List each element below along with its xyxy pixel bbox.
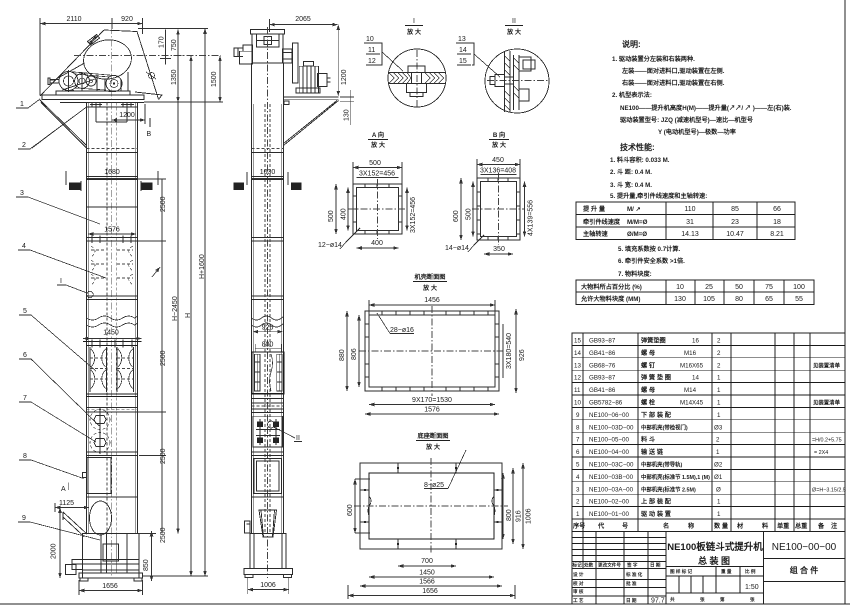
svg-text:Ø2: Ø2 (714, 462, 723, 469)
svg-text:1200: 1200 (341, 69, 348, 85)
svg-text:13: 13 (458, 36, 466, 43)
svg-text:25: 25 (705, 284, 713, 291)
svg-text:放 大: 放 大 (406, 28, 422, 36)
svg-text:GB41−86: GB41−86 (589, 387, 616, 394)
svg-text:1006: 1006 (526, 508, 533, 524)
svg-text:3. 斗 宽: 0.4 M.: 3. 斗 宽: 0.4 M. (610, 181, 652, 189)
svg-text:I: I (60, 278, 62, 285)
svg-text:800: 800 (506, 509, 513, 521)
svg-text:处数: 处数 (583, 562, 594, 569)
svg-text:28−ø16: 28−ø16 (390, 327, 414, 334)
svg-text:15: 15 (574, 338, 581, 345)
svg-text:600: 600 (453, 210, 460, 222)
svg-text:允许大物料块度 (MM): 允许大物料块度 (MM) (580, 295, 640, 303)
svg-text:1. 驱动装置分左装和右装两种.: 1. 驱动装置分左装和右装两种. (612, 55, 695, 63)
svg-text:916: 916 (516, 510, 523, 522)
svg-text:2500: 2500 (160, 448, 167, 464)
svg-text:9X170=1530: 9X170=1530 (412, 397, 452, 404)
svg-text:GB5782−86: GB5782−86 (589, 400, 623, 407)
svg-text:1456: 1456 (424, 297, 440, 304)
svg-text:校 对: 校 对 (573, 580, 584, 587)
svg-text:23: 23 (731, 219, 739, 226)
svg-text:驱动装置型号: JZQ (减速机型号)—速比—机型号: 驱动装置型号: JZQ (减速机型号)—速比—机型号 (620, 116, 753, 124)
svg-text:更改文件号: 更改文件号 (598, 562, 621, 569)
svg-text:75: 75 (765, 284, 773, 291)
svg-text:350: 350 (493, 246, 505, 253)
svg-text:审 核: 审 核 (573, 588, 584, 595)
svg-text:926: 926 (519, 349, 526, 361)
svg-text:放 大: 放 大 (506, 28, 522, 36)
svg-text:5: 5 (23, 308, 27, 315)
svg-text:料: 料 (762, 522, 769, 530)
svg-text:926: 926 (262, 325, 274, 332)
svg-text:工 艺: 工 艺 (573, 597, 584, 604)
svg-text:材: 材 (736, 522, 744, 530)
svg-text:放 大: 放 大 (422, 284, 438, 292)
svg-text:主轴转速: 主轴转速 (583, 230, 609, 238)
svg-text:8.21: 8.21 (770, 231, 784, 238)
svg-text:6. 牵引件安全系数 >1倍.: 6. 牵引件安全系数 >1倍. (618, 257, 685, 265)
svg-text:称: 称 (688, 522, 695, 530)
svg-text:806: 806 (351, 348, 358, 360)
svg-text:3: 3 (576, 486, 580, 493)
svg-text:8: 8 (23, 453, 27, 460)
svg-text:2: 2 (717, 338, 721, 345)
svg-text:A: A (61, 486, 66, 493)
svg-text:数 量: 数 量 (714, 522, 729, 530)
svg-text:序号: 序号 (572, 522, 585, 530)
svg-text:中部机壳(带检视门): 中部机壳(带检视门) (641, 423, 688, 431)
svg-text:1566: 1566 (419, 579, 435, 586)
svg-text:图 样 标 记: 图 样 标 记 (670, 568, 693, 575)
svg-text:1: 1 (717, 375, 721, 382)
svg-text:注: 注 (831, 522, 838, 530)
svg-text:7. 物料块度:: 7. 物料块度: (618, 270, 652, 278)
svg-text:1576: 1576 (424, 407, 440, 414)
svg-text:II: II (296, 435, 300, 442)
svg-text:750: 750 (171, 39, 178, 51)
svg-text:= 2X4: = 2X4 (814, 450, 828, 456)
svg-text:10: 10 (366, 36, 374, 43)
svg-text:B: B (147, 131, 152, 138)
svg-text:GB93−87: GB93−87 (589, 338, 616, 345)
svg-text:3X136=408: 3X136=408 (480, 168, 516, 175)
svg-text:1: 1 (717, 499, 721, 506)
svg-text:驱 动 装 置: 驱 动 装 置 (641, 510, 671, 518)
svg-text:NE100−02−00: NE100−02−00 (589, 499, 629, 506)
svg-text:55: 55 (795, 296, 803, 303)
svg-text:13: 13 (574, 362, 581, 369)
svg-text:6: 6 (576, 449, 580, 456)
svg-text:920: 920 (121, 16, 133, 23)
svg-text:料 斗: 料 斗 (641, 436, 655, 444)
svg-text:NE100−03B−00: NE100−03B−00 (589, 474, 634, 481)
svg-text:850: 850 (143, 559, 150, 571)
svg-text:见装置清单: 见装置清单 (812, 361, 841, 369)
svg-text:8−ø25: 8−ø25 (424, 482, 444, 489)
svg-text:12: 12 (574, 375, 581, 382)
svg-text:105: 105 (703, 296, 715, 303)
svg-text:1: 1 (716, 449, 720, 456)
svg-text:M16: M16 (684, 350, 697, 357)
svg-text:1125: 1125 (59, 500, 74, 507)
svg-text:GB41−86: GB41−86 (589, 350, 616, 357)
svg-text:50: 50 (735, 284, 743, 291)
svg-text:NE100−05−00: NE100−05−00 (589, 437, 629, 444)
svg-text:NE100——提升机高度H(M)——提升量(↗↗/ ↗ )—: NE100——提升机高度H(M)——提升量(↗↗/ ↗ )——左(右)装. (620, 104, 792, 112)
svg-text:500: 500 (369, 160, 381, 167)
svg-text:标记: 标记 (572, 562, 583, 569)
svg-text:880: 880 (339, 349, 346, 361)
svg-text:5. 填充系数按 0.7计算.: 5. 填充系数按 0.7计算. (618, 245, 681, 253)
svg-text:Ø1: Ø1 (714, 474, 723, 481)
svg-text:上 部 装 配: 上 部 装 配 (641, 498, 672, 506)
svg-text:1: 1 (717, 511, 721, 518)
svg-text:右装——面对进料口,驱动装置在右侧.: 右装——面对进料口,驱动装置在右侧. (622, 79, 725, 87)
svg-text:NE100−06−00: NE100−06−00 (589, 412, 629, 419)
svg-text:4: 4 (576, 474, 580, 481)
svg-text:机壳断面图: 机壳断面图 (415, 273, 446, 281)
svg-text:中部机壳(标准节 1.5M),1 (M): 中部机壳(标准节 1.5M),1 (M) (641, 473, 710, 481)
svg-text:1450: 1450 (419, 570, 435, 577)
svg-text:1. 料斗容积: 0.033 M.: 1. 料斗容积: 0.033 M. (610, 156, 670, 164)
svg-text:110: 110 (684, 206, 695, 213)
svg-text:组 合 件: 组 合 件 (790, 565, 818, 575)
svg-text:18: 18 (773, 219, 781, 226)
svg-text:重 量: 重 量 (721, 568, 732, 575)
svg-text:GB68−76: GB68−76 (589, 362, 616, 369)
svg-text:1656: 1656 (422, 588, 438, 595)
svg-text:2: 2 (717, 362, 721, 369)
svg-text:2: 2 (576, 499, 580, 506)
svg-text:H: H (185, 313, 192, 318)
svg-text:螺 钉: 螺 钉 (641, 361, 656, 369)
svg-text:9: 9 (22, 515, 26, 522)
svg-text:2000: 2000 (51, 543, 58, 559)
svg-text:批 准: 批 准 (626, 580, 637, 587)
svg-text:螺 母: 螺 母 (641, 386, 655, 394)
svg-text:2500: 2500 (160, 350, 167, 366)
svg-text:B 向: B 向 (493, 131, 505, 139)
svg-text:10.47: 10.47 (726, 231, 744, 238)
svg-text:700: 700 (421, 558, 433, 565)
svg-text:左装——面对进料口,驱动装置在左侧.: 左装——面对进料口,驱动装置在左侧. (621, 67, 725, 75)
svg-text:M14: M14 (684, 387, 697, 394)
svg-text:见装置清单: 见装置清单 (812, 399, 841, 407)
svg-text:M14X45: M14X45 (680, 400, 704, 407)
svg-text:97.7: 97.7 (651, 598, 665, 605)
svg-text:签 字: 签 字 (626, 562, 638, 569)
svg-text:说明:: 说明: (622, 39, 641, 49)
svg-text:9: 9 (576, 412, 580, 419)
svg-text:总 装 图: 总 装 图 (698, 555, 730, 566)
svg-text:大物料所占百分比 (%): 大物料所占百分比 (%) (581, 283, 642, 291)
svg-text:14: 14 (692, 375, 699, 382)
svg-text:10: 10 (676, 284, 684, 291)
svg-text:H+1600: H+1600 (199, 254, 206, 279)
svg-text:设 计: 设 计 (573, 571, 584, 578)
svg-text:65: 65 (765, 296, 773, 303)
svg-text:1500: 1500 (211, 71, 218, 87)
svg-text:1: 1 (717, 412, 721, 419)
svg-text:3: 3 (20, 190, 24, 197)
svg-text:II: II (512, 18, 516, 25)
svg-text:总重: 总重 (795, 522, 808, 530)
svg-text:技术性能:: 技术性能: (620, 142, 655, 152)
svg-text:1:50: 1:50 (745, 584, 759, 591)
svg-text:GB93−87: GB93−87 (589, 375, 616, 382)
svg-text:1450: 1450 (103, 330, 119, 337)
svg-text:螺 母: 螺 母 (641, 349, 655, 357)
svg-text:NE100−03A−00: NE100−03A−00 (589, 486, 634, 493)
svg-text:4X139=556: 4X139=556 (528, 200, 535, 236)
svg-text:放 大: 放 大 (491, 141, 507, 149)
svg-text:放 大: 放 大 (370, 141, 386, 149)
svg-text:提 升 量: 提 升 量 (583, 205, 606, 213)
svg-text:中部机壳(带导轨): 中部机壳(带导轨) (641, 461, 683, 469)
svg-text:放 大: 放 大 (425, 443, 441, 451)
svg-text:NE100−03D−00: NE100−03D−00 (589, 424, 634, 431)
svg-text:比 例: 比 例 (745, 568, 756, 575)
svg-text:500: 500 (328, 210, 335, 222)
svg-text:1: 1 (576, 511, 580, 518)
svg-text:11: 11 (574, 387, 581, 394)
svg-text:2. 机型表示法:: 2. 机型表示法: (612, 91, 652, 99)
svg-text:2: 2 (717, 350, 721, 357)
svg-text:日 期: 日 期 (626, 597, 637, 604)
svg-text:1: 1 (717, 387, 721, 394)
svg-text:2065: 2065 (295, 16, 311, 23)
svg-text:NE100−00−00: NE100−00−00 (772, 542, 837, 553)
svg-text:弹 簧 垫 圈: 弹 簧 垫 圈 (641, 374, 671, 382)
svg-text:3X180=540: 3X180=540 (506, 333, 513, 369)
svg-text:4: 4 (22, 243, 26, 250)
svg-text:中部机壳(标准节 2.5M): 中部机壳(标准节 2.5M) (641, 485, 696, 493)
svg-text:1: 1 (717, 400, 721, 407)
svg-text:NE100−01−00: NE100−01−00 (589, 511, 629, 518)
svg-text:M/ ↗: M/ ↗ (627, 206, 641, 213)
svg-text:NE100板链斗式提升机: NE100板链斗式提升机 (667, 541, 763, 553)
svg-text:1200: 1200 (119, 112, 135, 119)
svg-text:11: 11 (368, 47, 375, 54)
svg-text:底座断面图: 底座断面图 (418, 432, 449, 440)
svg-text:下 部 装 配: 下 部 装 配 (641, 411, 672, 419)
svg-text:张: 张 (700, 596, 705, 603)
svg-text:7: 7 (23, 395, 27, 402)
svg-text:16: 16 (692, 338, 699, 345)
svg-text:日 期: 日 期 (650, 562, 661, 569)
svg-text:2500: 2500 (160, 527, 167, 543)
svg-text:400: 400 (371, 240, 383, 247)
svg-text:450: 450 (492, 157, 504, 164)
svg-text:31: 31 (686, 219, 694, 226)
svg-text:1350: 1350 (171, 69, 178, 85)
svg-text:M16X65: M16X65 (680, 362, 704, 369)
svg-text:10: 10 (574, 400, 581, 407)
svg-text:14.13: 14.13 (681, 231, 699, 238)
svg-text:牵引件线速度: 牵引件线速度 (583, 218, 621, 226)
svg-text:2110: 2110 (66, 16, 81, 23)
svg-text:标 准 化: 标 准 化 (625, 571, 643, 578)
svg-text:Y (电动机型号)—极数—功率: Y (电动机型号)—极数—功率 (658, 128, 737, 136)
svg-text:12: 12 (368, 58, 376, 65)
svg-text:800: 800 (262, 342, 274, 349)
svg-text:130: 130 (674, 296, 686, 303)
svg-text:5. 提升量,牵引件线速度和主轴转速:: 5. 提升量,牵引件线速度和主轴转速: (610, 192, 707, 200)
svg-text:号: 号 (622, 522, 628, 530)
svg-text:名: 名 (663, 522, 669, 530)
svg-text:Ø=H−3.15/2.5: Ø=H−3.15/2.5 (812, 487, 846, 493)
svg-text:3X152=456: 3X152=456 (359, 171, 395, 178)
svg-text:1576: 1576 (104, 227, 120, 234)
svg-text:3X152=456: 3X152=456 (410, 197, 417, 233)
svg-text:1006: 1006 (260, 582, 276, 589)
svg-text:600: 600 (347, 504, 354, 516)
svg-text:A 向: A 向 (372, 131, 384, 139)
svg-text:14−ø14: 14−ø14 (445, 245, 469, 252)
svg-text:400: 400 (341, 208, 348, 220)
svg-text:2: 2 (22, 142, 26, 149)
svg-text:1656: 1656 (102, 583, 118, 590)
svg-text:14: 14 (574, 350, 581, 357)
svg-text:I: I (413, 18, 415, 25)
svg-text:100: 100 (793, 284, 805, 291)
svg-text:=H/0.2+5.75: =H/0.2+5.75 (812, 438, 842, 444)
svg-text:85: 85 (731, 206, 739, 213)
svg-text:66: 66 (773, 206, 781, 213)
svg-text:NE100−03C−00: NE100−03C−00 (589, 462, 634, 469)
svg-text:6: 6 (23, 352, 27, 359)
svg-text:第: 第 (720, 596, 725, 603)
svg-text:12−ø14: 12−ø14 (318, 242, 342, 249)
svg-text:2: 2 (716, 437, 720, 444)
svg-text:Ø: Ø (716, 486, 721, 493)
svg-text:单重: 单重 (777, 522, 790, 530)
svg-text:1030: 1030 (260, 169, 276, 176)
svg-text:Ø3: Ø3 (714, 424, 723, 431)
svg-text:共: 共 (670, 596, 675, 603)
svg-text:15: 15 (459, 58, 467, 65)
svg-text:14: 14 (459, 47, 467, 54)
svg-text:Ø/M=Ø: Ø/M=Ø (627, 231, 647, 238)
svg-text:备: 备 (817, 522, 825, 530)
svg-text:NE100−04−00: NE100−04−00 (589, 449, 629, 456)
svg-text:500: 500 (466, 208, 473, 220)
svg-text:2500: 2500 (160, 196, 167, 212)
svg-text:170: 170 (159, 36, 166, 48)
svg-text:M/M=Ø: M/M=Ø (627, 219, 648, 226)
svg-text:2. 斗 距: 0.4 M.: 2. 斗 距: 0.4 M. (610, 168, 652, 176)
svg-text:张: 张 (750, 596, 755, 603)
svg-text:代: 代 (597, 522, 605, 530)
svg-text:7: 7 (576, 437, 580, 444)
svg-text:H−2450: H−2450 (172, 296, 179, 321)
svg-text:1680: 1680 (104, 169, 120, 176)
svg-text:1: 1 (20, 101, 24, 108)
svg-text:130: 130 (344, 109, 351, 121)
svg-text:80: 80 (735, 296, 743, 303)
svg-text:8: 8 (576, 424, 580, 431)
svg-text:螺 栓: 螺 栓 (641, 399, 656, 407)
svg-text:弹簧垫圈: 弹簧垫圈 (641, 337, 666, 345)
svg-text:输 送 链: 输 送 链 (641, 448, 664, 456)
svg-text:5: 5 (576, 462, 580, 469)
